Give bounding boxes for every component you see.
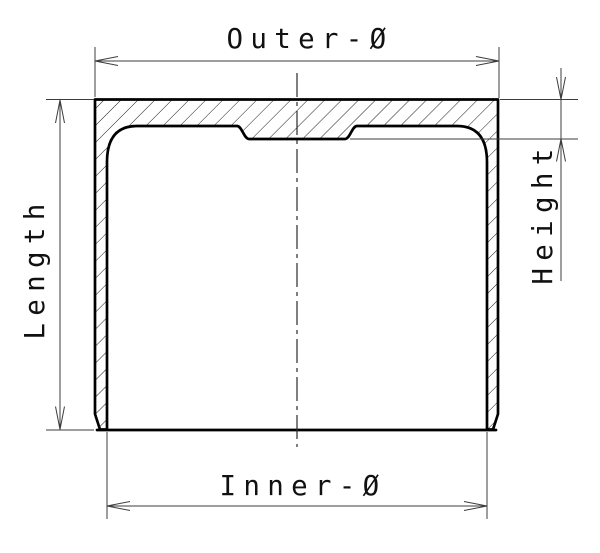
length-label: Length (19, 196, 51, 339)
outer-diameter-label: Outer-Ø (227, 23, 394, 55)
inner-diameter-label: Inner-Ø (220, 470, 387, 502)
height-label: Height (527, 141, 559, 284)
length-dimension: Length (19, 100, 94, 431)
tappet-section-drawing: Outer-Ø Length Height (0, 0, 600, 553)
technical-drawing-canvas: Outer-Ø Length Height (0, 0, 600, 553)
